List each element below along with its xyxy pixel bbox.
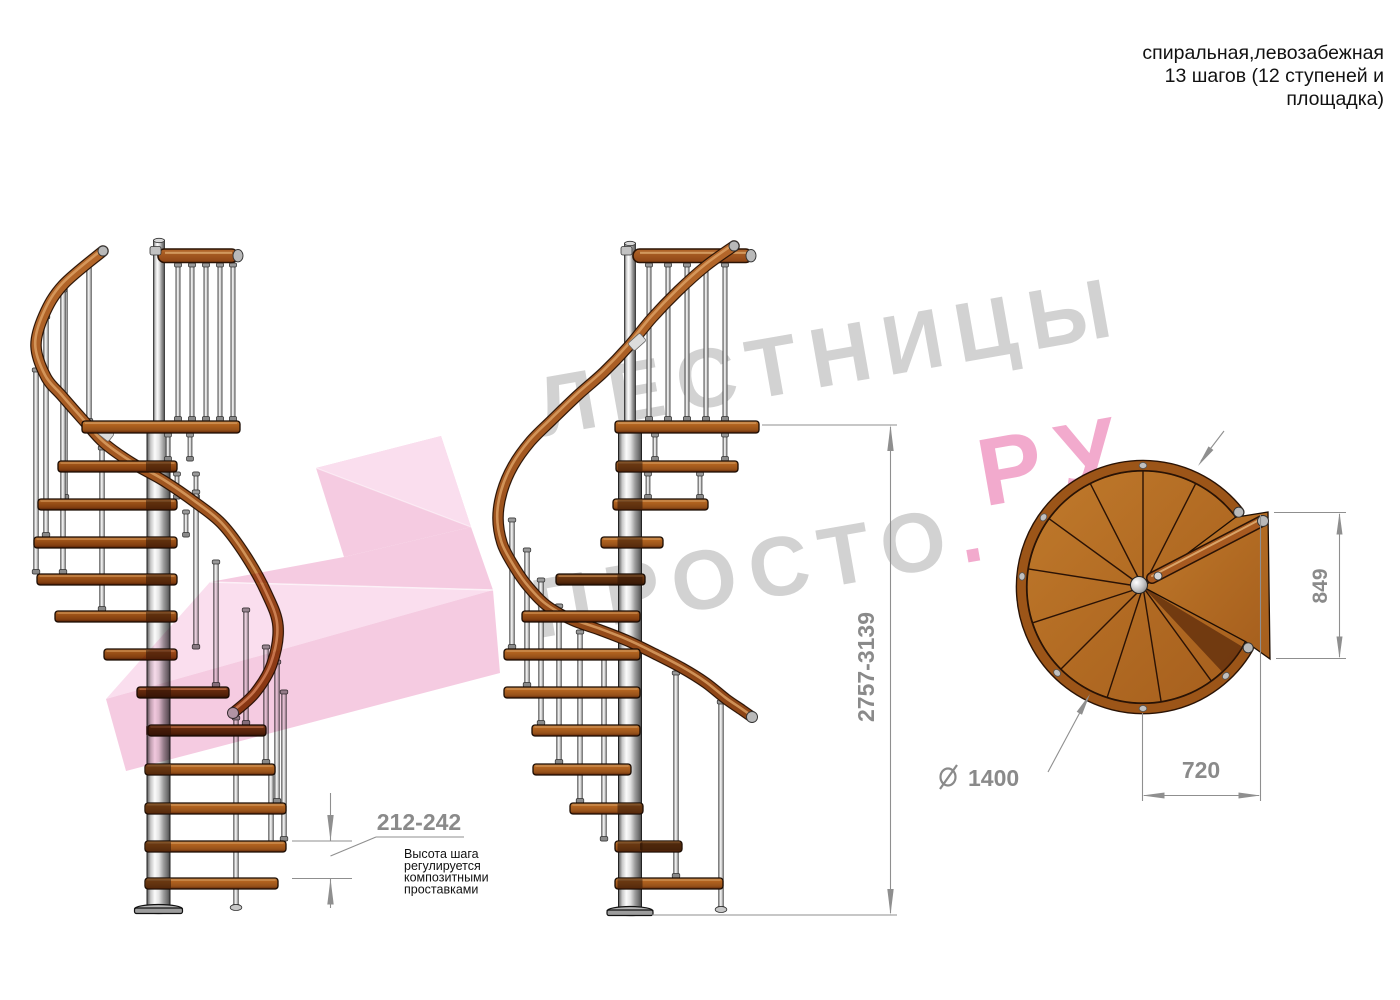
svg-text:212-242: 212-242 — [377, 809, 461, 835]
svg-text:1400: 1400 — [968, 765, 1019, 791]
svg-text:849: 849 — [1309, 568, 1332, 603]
svg-text:Высота шагарегулируетсякомпози: Высота шагарегулируетсякомпозитнымипрост… — [404, 847, 489, 896]
svg-text:2757-3139: 2757-3139 — [853, 612, 879, 722]
svg-text:720: 720 — [1182, 757, 1220, 783]
